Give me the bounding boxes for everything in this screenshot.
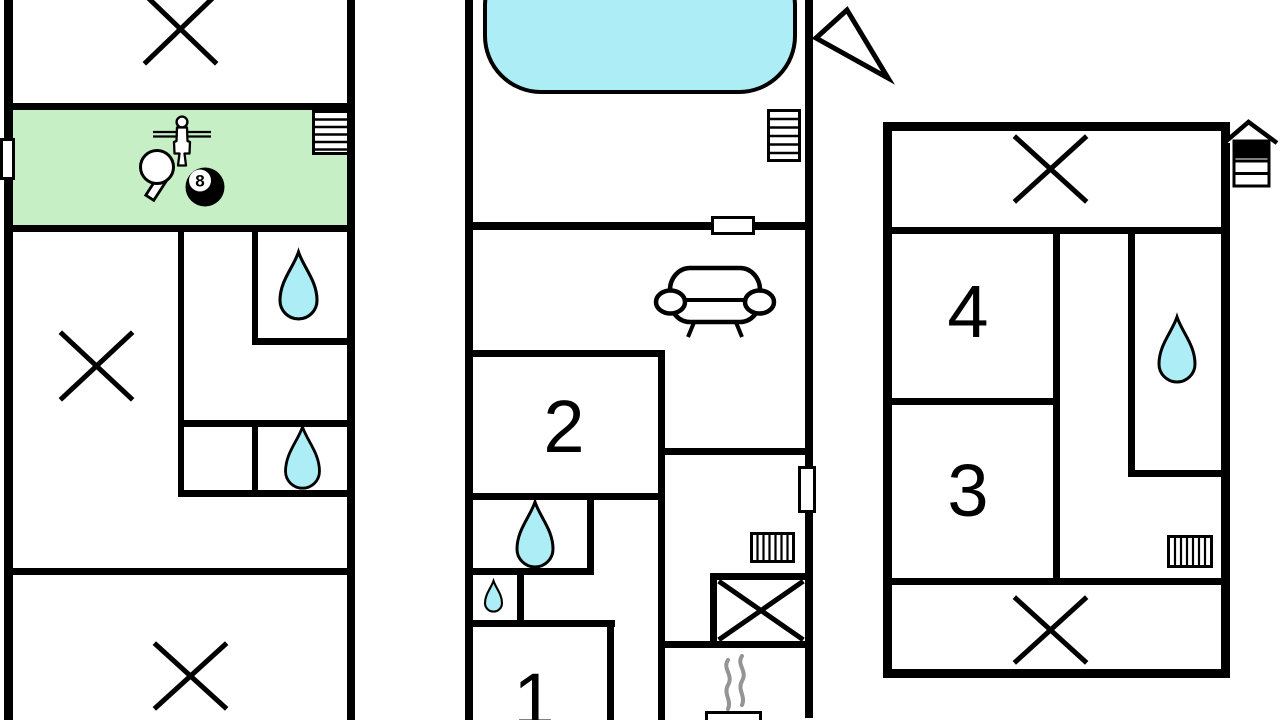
radiator-icon	[750, 532, 795, 563]
wall-segment	[1128, 470, 1221, 477]
water-drop-icon	[283, 425, 322, 491]
wall-segment	[883, 122, 1230, 131]
room-number-label: 4	[947, 275, 988, 349]
window-icon	[0, 138, 15, 180]
wall-segment	[892, 227, 1221, 234]
water-drop-icon	[277, 250, 320, 322]
cross-icon	[58, 330, 135, 402]
water-drop-icon	[515, 500, 555, 570]
eight-ball-number: 8	[195, 172, 204, 191]
water-drop-icon	[1157, 315, 1197, 385]
wall-segment	[665, 448, 813, 455]
radiator-icon	[1167, 535, 1213, 568]
cross-icon	[142, 0, 219, 66]
wall-segment	[4, 225, 355, 232]
wall-segment	[883, 669, 1230, 678]
wall-segment	[892, 398, 1053, 405]
room-number-label: 3	[947, 454, 988, 528]
wall-segment	[710, 573, 805, 580]
wall-segment	[658, 350, 665, 720]
wall-segment	[465, 493, 665, 500]
wall-segment	[658, 641, 813, 648]
wall-segment	[1128, 234, 1135, 477]
cross-icon	[1012, 595, 1089, 665]
wall-segment	[892, 578, 1221, 585]
cross-icon	[152, 641, 229, 711]
stairs-icon	[312, 110, 350, 155]
water-drop-icon	[482, 580, 505, 613]
house-storey-icon	[1222, 114, 1280, 188]
wall-segment	[465, 0, 473, 720]
north-arrow-icon	[812, 6, 892, 82]
cross-icon	[1012, 134, 1089, 204]
room-number-label: 1	[513, 663, 554, 720]
wall-segment	[252, 338, 355, 345]
wall-segment	[465, 222, 813, 230]
shower-cross-icon	[717, 580, 805, 641]
wall-segment	[1053, 234, 1060, 578]
wall-segment	[252, 427, 258, 497]
wall-segment	[805, 0, 813, 718]
wall-segment	[607, 627, 614, 720]
stairs-icon	[767, 109, 801, 162]
sofa-icon	[655, 262, 775, 340]
wall-segment	[4, 103, 355, 110]
wall-segment	[883, 122, 892, 678]
door-icon	[798, 466, 816, 513]
wall-segment	[587, 500, 594, 575]
wall-segment	[252, 232, 258, 345]
sauna-steam-icon	[720, 654, 750, 712]
pool-icon	[483, 0, 797, 94]
floor-plan-canvas: 8	[0, 0, 1280, 720]
wall-segment	[4, 568, 355, 575]
table-tennis-paddle-icon	[137, 148, 179, 202]
wall-segment	[710, 573, 717, 648]
wall-segment	[465, 350, 665, 357]
wall-segment	[178, 232, 184, 497]
wall-segment	[465, 620, 615, 627]
wall-segment	[1221, 122, 1230, 678]
window-icon	[711, 216, 755, 235]
eight-ball-icon: 8	[184, 166, 226, 208]
stove-icon	[705, 711, 762, 720]
room-number-label: 2	[543, 390, 584, 464]
wall-segment	[180, 490, 347, 497]
